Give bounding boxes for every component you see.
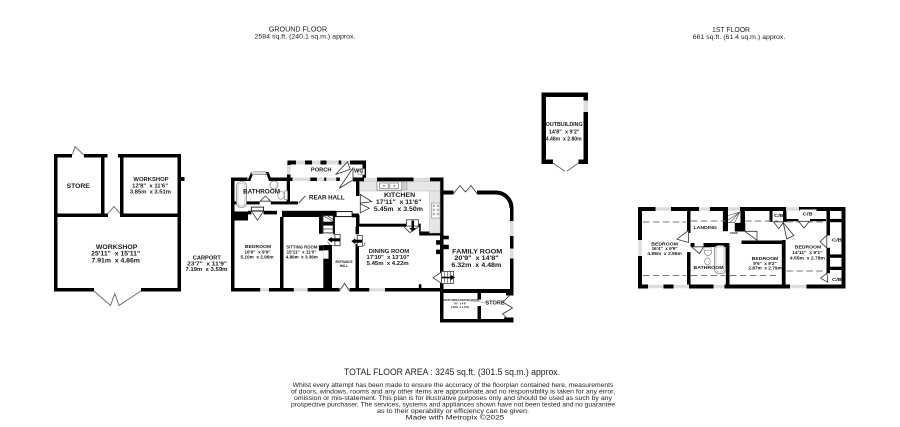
svg-text:TOTAL FLOOR AREA : 3245 sq.ft.: TOTAL FLOOR AREA : 3245 sq.ft. (301.5 sq…	[344, 367, 560, 377]
svg-text:REAR HALL: REAR HALL	[309, 194, 345, 201]
svg-text:14'8" x 9'2": 14'8" x 9'2"	[549, 129, 580, 135]
svg-text:BEDROOM: BEDROOM	[245, 244, 271, 249]
svg-text:LANDING: LANDING	[694, 225, 718, 230]
svg-text:5.10m x 2.96m: 5.10m x 2.96m	[241, 254, 274, 259]
svg-text:7'6" x 4'6": 7'6" x 4'6"	[453, 301, 467, 305]
svg-text:2584 sq.ft. (240.1 sq.m.) appr: 2584 sq.ft. (240.1 sq.m.) approx.	[255, 34, 356, 41]
svg-text:BATHROOM: BATHROOM	[694, 265, 724, 270]
svg-text:Made with Metropix ©2025: Made with Metropix ©2025	[406, 414, 505, 422]
svg-text:7.19m x 3.59m: 7.19m x 3.59m	[185, 267, 227, 273]
svg-text:GROUND FLOOR: GROUND FLOOR	[269, 27, 327, 34]
svg-text:661 sq.ft. (61.4 sq.m.) approx: 661 sq.ft. (61.4 sq.m.) approx.	[693, 34, 786, 41]
svg-text:C/B: C/B	[832, 238, 843, 243]
svg-text:2.87m x 2.79m: 2.87m x 2.79m	[748, 266, 782, 271]
svg-text:17'11" x 11'6": 17'11" x 11'6"	[376, 200, 422, 206]
svg-text:C/B: C/B	[803, 211, 814, 216]
svg-text:5.45m x 4.22m: 5.45m x 4.22m	[367, 261, 410, 267]
svg-text:STORE: STORE	[485, 301, 505, 307]
svg-text:4.86m x 3.36m: 4.86m x 3.36m	[286, 254, 318, 259]
svg-text:BATHROOM: BATHROOM	[243, 188, 280, 195]
svg-text:3.85m x 3.51m: 3.85m x 3.51m	[130, 189, 172, 195]
svg-text:PORCH: PORCH	[311, 168, 332, 174]
svg-text:4.98m x 2.96m: 4.98m x 2.96m	[647, 251, 682, 256]
svg-text:BEDROOM: BEDROOM	[795, 244, 822, 249]
svg-text:KITCHEN: KITCHEN	[384, 192, 416, 199]
svg-text:OUTBUILDING: OUTBUILDING	[546, 122, 583, 128]
svg-text:4.48m x 2.80m: 4.48m x 2.80m	[546, 137, 582, 143]
svg-text:2.29m x 1.37m: 2.29m x 1.37m	[451, 305, 470, 309]
svg-text:14'11" x 9'1": 14'11" x 9'1"	[792, 250, 822, 255]
svg-text:C/B: C/B	[832, 277, 843, 282]
svg-text:WORKSHOP: WORKSHOP	[133, 177, 169, 183]
svg-text:STORE: STORE	[67, 183, 91, 190]
svg-text:7.91m x 4.86m: 7.91m x 4.86m	[92, 257, 141, 264]
svg-text:OTHER UNDECORATED ROOM: OTHER UNDECORATED ROOM	[441, 298, 480, 302]
svg-text:5.45m x 3.50m: 5.45m x 3.50m	[374, 207, 423, 213]
svg-text:HALL: HALL	[340, 264, 349, 268]
svg-text:6.32m x 4.48m: 6.32m x 4.48m	[451, 262, 501, 269]
svg-text:C/B: C/B	[774, 213, 785, 218]
svg-text:DOWN: DOWN	[730, 232, 738, 235]
svg-text:4.55m x 2.78m: 4.55m x 2.78m	[790, 255, 825, 260]
svg-text:WC: WC	[354, 169, 363, 175]
